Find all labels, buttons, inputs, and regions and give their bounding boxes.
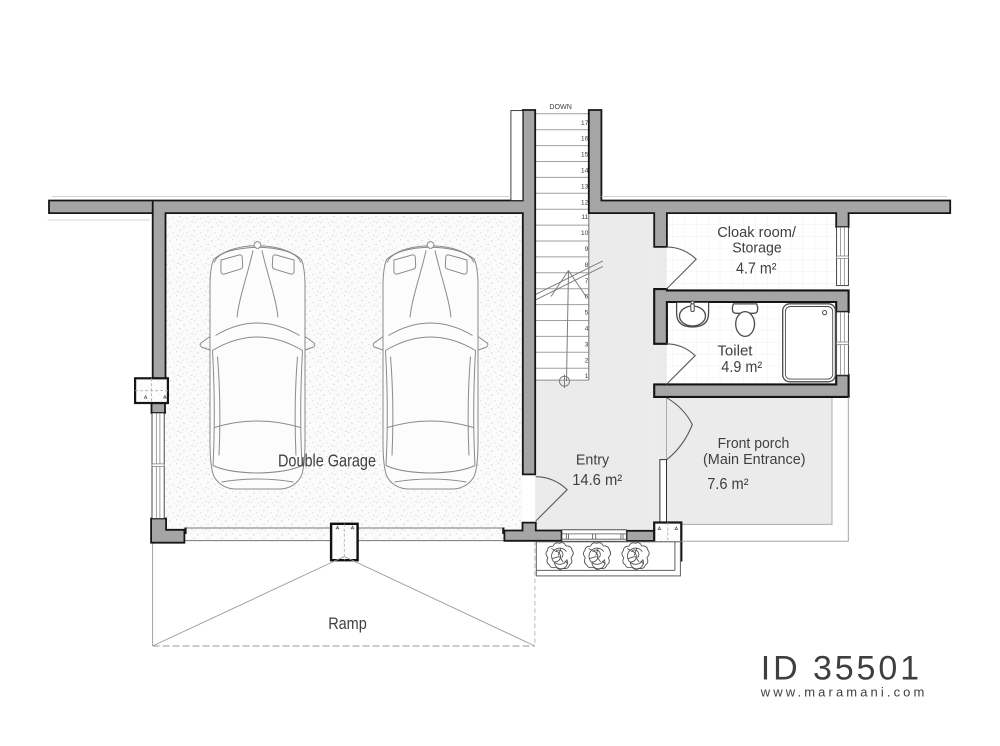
svg-text:3: 3 [585,341,589,348]
svg-text:ID 35501: ID 35501 [761,650,922,688]
svg-text:6: 6 [585,294,589,301]
svg-text:Entry: Entry [576,452,610,469]
svg-text:15: 15 [581,152,589,159]
svg-text:Front porch: Front porch [718,435,790,452]
svg-text:Cloak room/: Cloak room/ [717,224,797,241]
svg-text:2: 2 [585,357,589,364]
svg-text:1: 1 [585,373,589,380]
svg-text:Toilet: Toilet [717,342,753,359]
svg-text:5: 5 [585,310,589,317]
svg-text:Double Garage: Double Garage [278,451,376,471]
svg-text:16: 16 [581,136,589,143]
svg-text:7: 7 [585,278,589,285]
svg-text:14: 14 [581,168,589,175]
svg-text:8: 8 [585,262,589,269]
svg-text:17: 17 [581,120,589,127]
svg-text:14.6 m²: 14.6 m² [572,472,622,489]
svg-text:(Main Entrance): (Main Entrance) [703,451,806,468]
svg-text:7.6 m²: 7.6 m² [707,476,748,493]
svg-text:11: 11 [581,214,588,221]
svg-text:4.9 m²: 4.9 m² [721,359,762,376]
svg-text:4: 4 [585,326,589,333]
svg-text:4.7 m²: 4.7 m² [736,260,777,277]
svg-text:12: 12 [581,199,589,206]
svg-text:Storage: Storage [732,240,782,257]
svg-text:www.maramani.com: www.maramani.com [760,684,928,699]
svg-text:Ramp: Ramp [328,615,367,633]
svg-text:9: 9 [585,246,589,253]
svg-text:10: 10 [581,230,589,237]
svg-text:13: 13 [581,183,589,190]
svg-text:DOWN: DOWN [549,102,572,111]
